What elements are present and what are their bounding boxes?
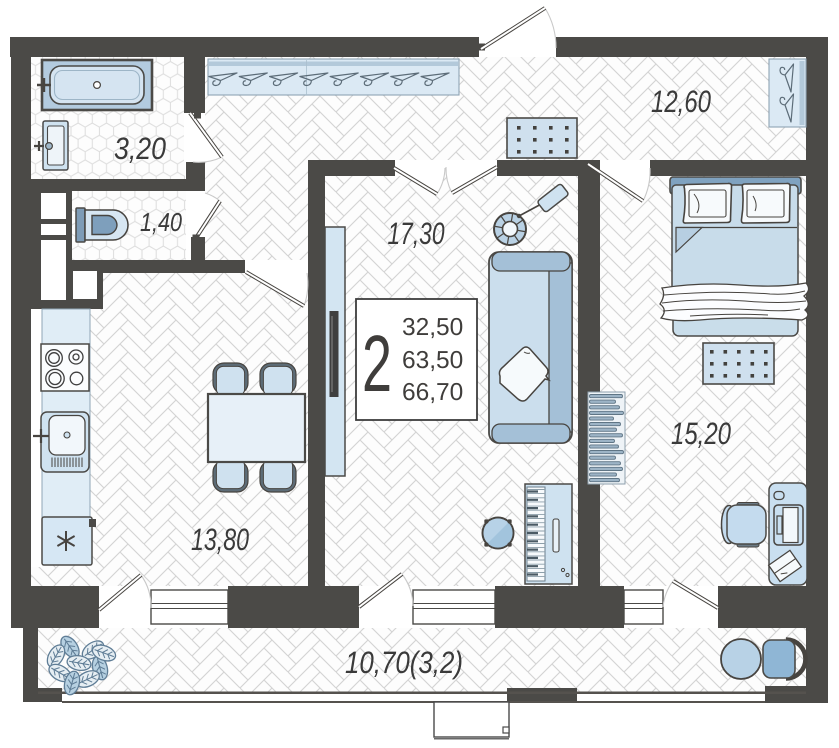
svg-text:15,20: 15,20 [671, 416, 731, 451]
svg-text:3,20: 3,20 [114, 131, 166, 166]
svg-text:10,70(3,2): 10,70(3,2) [345, 645, 463, 680]
svg-text:63,50: 63,50 [402, 347, 463, 374]
svg-text:2: 2 [362, 319, 392, 408]
svg-text:66,70: 66,70 [402, 379, 463, 406]
svg-text:12,60: 12,60 [651, 84, 711, 119]
svg-text:32,50: 32,50 [402, 314, 463, 341]
svg-text:17,30: 17,30 [388, 216, 445, 251]
svg-text:13,80: 13,80 [191, 522, 249, 557]
svg-text:1,40: 1,40 [140, 207, 182, 237]
